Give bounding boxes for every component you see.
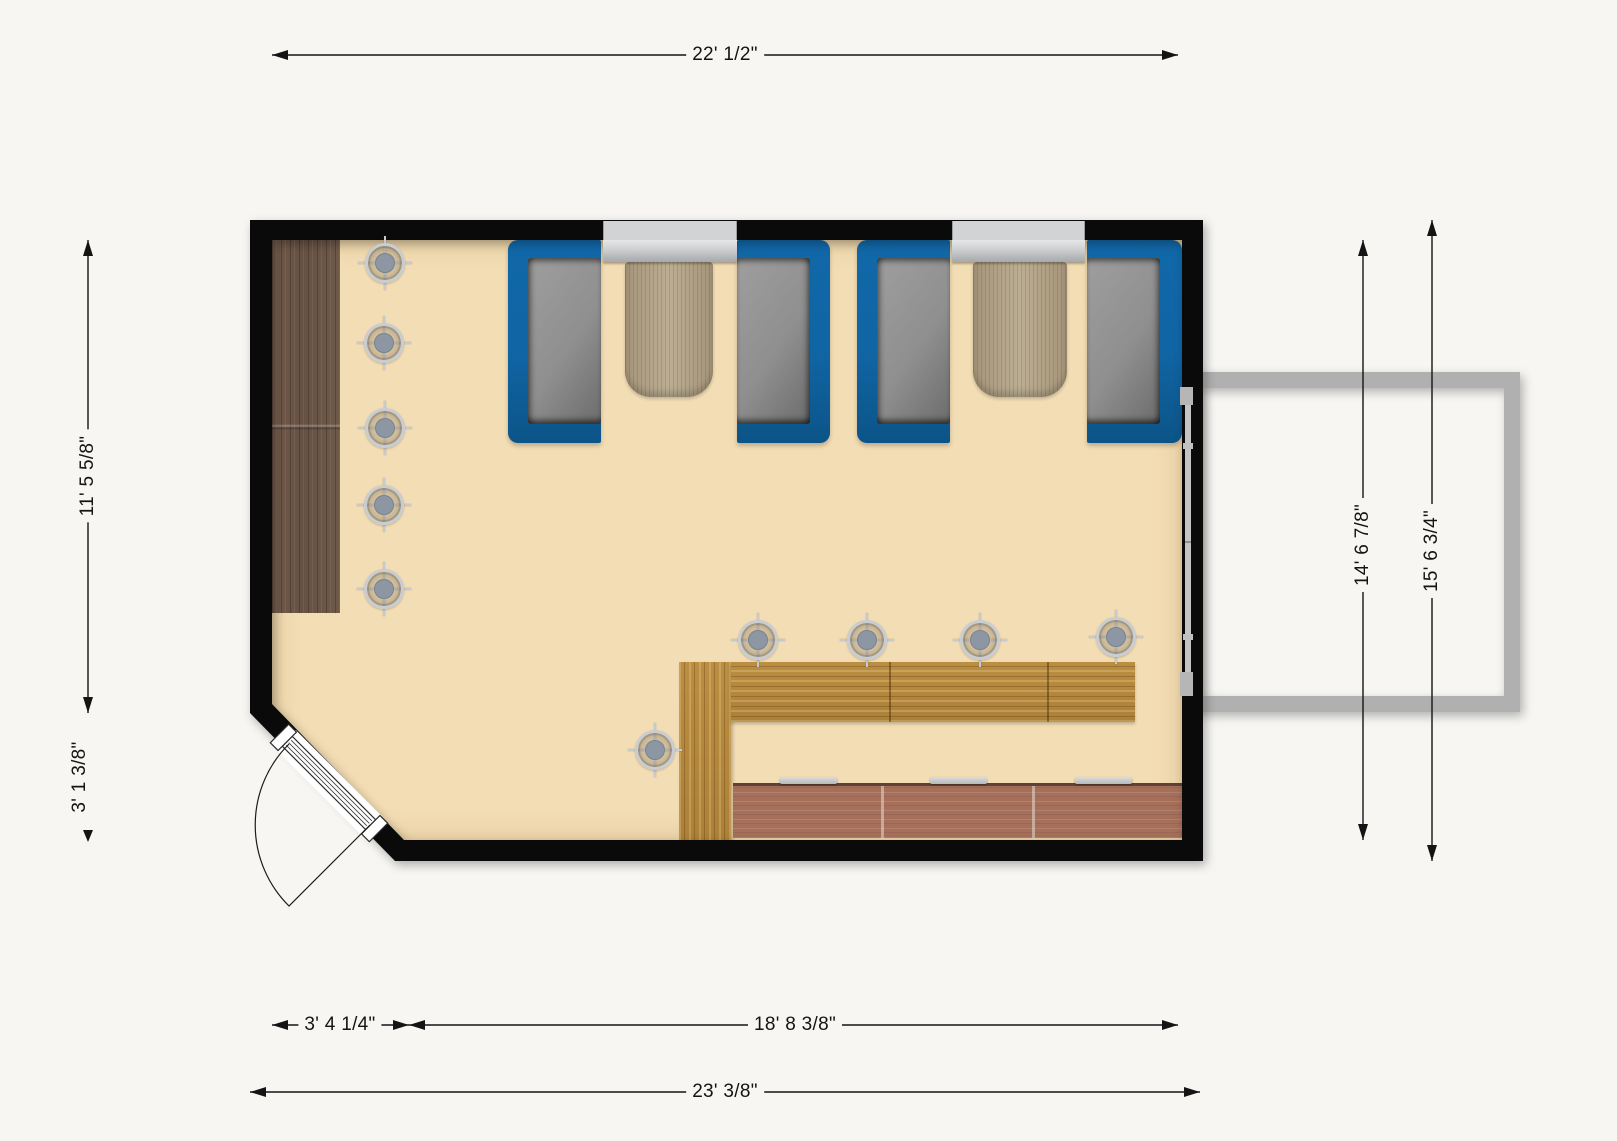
- ceiling-light-icon[interactable]: [357, 478, 411, 532]
- tile-walkway[interactable]: [733, 783, 1182, 838]
- dimension-bottom-total: 23' 3/8": [686, 1081, 764, 1103]
- dimension-bottom-right: 18' 8 3/8": [748, 1014, 842, 1036]
- counter-stool[interactable]: [780, 777, 837, 784]
- window[interactable]: [952, 221, 1085, 240]
- ceiling-light-icon[interactable]: [357, 562, 411, 616]
- dimension-right-interior: 14' 6 7/8": [1352, 498, 1374, 592]
- dimension-top-width: 22' 1/2": [686, 44, 764, 66]
- counter-front[interactable]: [679, 662, 731, 840]
- bench-cushion: [877, 258, 950, 424]
- counter-top[interactable]: [731, 662, 1135, 722]
- ceiling-light-icon[interactable]: [358, 401, 412, 455]
- booth-bench[interactable]: [737, 240, 830, 443]
- dimension-right-exterior: 15' 6 3/4": [1421, 504, 1443, 598]
- booth-table[interactable]: [973, 262, 1067, 397]
- booth-bench[interactable]: [508, 240, 601, 443]
- ceiling-light-icon[interactable]: [731, 613, 785, 667]
- bench-cushion: [1087, 258, 1160, 424]
- ceiling-light-icon[interactable]: [953, 613, 1007, 667]
- ceiling-light-icon[interactable]: [358, 236, 412, 290]
- counter-stool[interactable]: [930, 777, 987, 784]
- sliding-door-handle: [1183, 634, 1193, 640]
- floor-plan-canvas: 22' 1/2" 11' 5 5/8" 3' 1 3/8" 14' 6 7/8"…: [0, 0, 1617, 1141]
- ceiling-light-icon[interactable]: [357, 316, 411, 370]
- sliding-door-jamb: [1180, 672, 1193, 696]
- booth-bench[interactable]: [857, 240, 950, 443]
- window[interactable]: [603, 221, 737, 240]
- window-sill: [952, 240, 1085, 262]
- window-sill: [603, 240, 737, 262]
- booth-table[interactable]: [625, 262, 713, 397]
- ceiling-light-icon[interactable]: [840, 613, 894, 667]
- dimension-left-upper: 11' 5 5/8": [77, 430, 99, 523]
- bench-cushion: [737, 258, 810, 424]
- counter-stool[interactable]: [1075, 777, 1132, 784]
- ceiling-light-icon[interactable]: [628, 723, 682, 777]
- ceiling-light-icon[interactable]: [1089, 610, 1143, 664]
- dimension-bottom-left: 3' 4 1/4": [298, 1014, 381, 1036]
- wood-floor-strip[interactable]: [272, 240, 340, 613]
- sliding-door-jamb: [1180, 387, 1193, 405]
- dimension-left-lower: 3' 1 3/8": [69, 735, 91, 818]
- booth-bench[interactable]: [1087, 240, 1182, 443]
- sliding-door-handle: [1183, 443, 1193, 449]
- bench-cushion: [528, 258, 601, 424]
